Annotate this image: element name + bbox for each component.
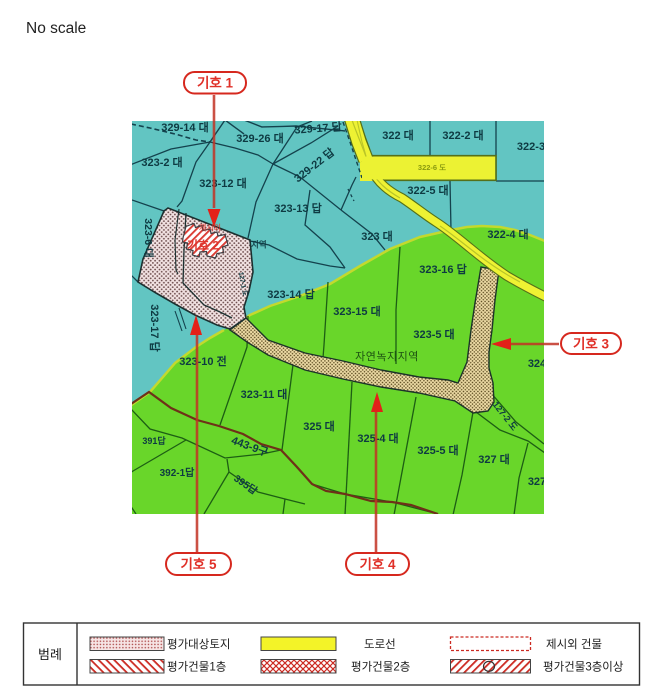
- svg-text:평가건물3층이상: 평가건물3층이상: [543, 661, 624, 674]
- svg-text:평가대상토지: 평가대상토지: [167, 638, 230, 651]
- svg-text:제시외 건물: 제시외 건물: [546, 638, 602, 651]
- svg-text:평가건물1층: 평가건물1층: [167, 661, 226, 674]
- svg-text:도로선: 도로선: [364, 638, 396, 651]
- svg-text:범례: 범례: [38, 647, 62, 662]
- svg-text:평가건물2층: 평가건물2층: [351, 661, 410, 674]
